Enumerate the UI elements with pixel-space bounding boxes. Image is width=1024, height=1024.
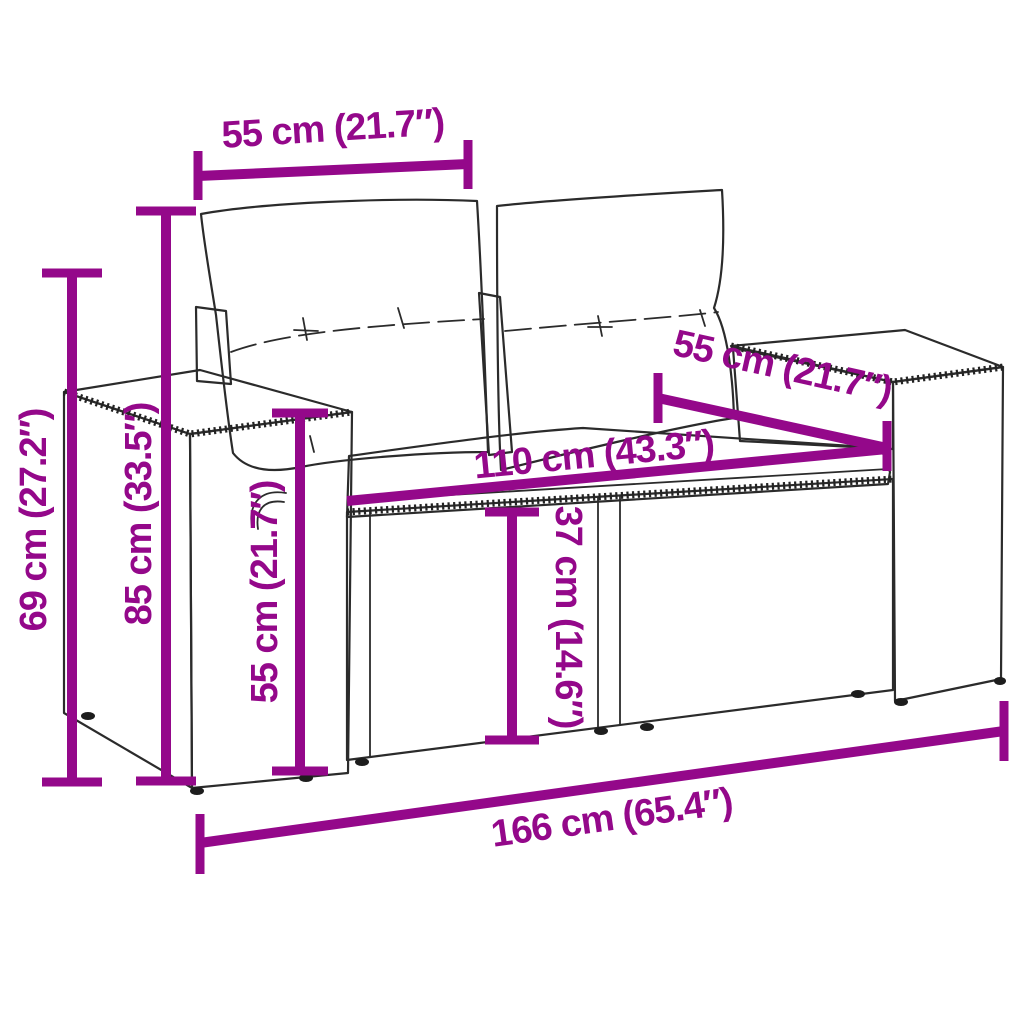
dim-seat-height: 37 cm (14.6″): [485, 506, 589, 740]
right-armrest-front-face: [893, 367, 1003, 701]
sofa-feet: [81, 677, 1006, 795]
dim-seat-front-height: 55 cm (21.7″): [244, 413, 328, 771]
dim-label-seat-depth: 55 cm (21.7″): [669, 322, 896, 411]
back-frame-center-post: [479, 293, 512, 455]
dim-armrest-height: 69 cm (27.2″): [13, 273, 102, 782]
dim-label-seat-height: 37 cm (14.6″): [547, 506, 589, 729]
dim-back-cushion-width: 55 cm (21.7″): [198, 101, 468, 200]
dim-label-seat-front-height: 55 cm (21.7″): [244, 481, 286, 704]
dim-label-total-width: 166 cm (65.4″): [489, 780, 735, 855]
sofa-drawing: [64, 190, 1006, 795]
left-back-cushion-crease: [231, 319, 484, 352]
dimension-diagram: 55 cm (21.7″) 55 cm (21.7″) 110 cm (43.3…: [0, 0, 1024, 1024]
left-armrest-top: [64, 370, 352, 434]
dim-label-back-cushion-width: 55 cm (21.7″): [220, 101, 445, 157]
dim-back-height: 85 cm (33.5″): [118, 211, 196, 781]
back-frame-left-post: [196, 307, 231, 384]
diagram-canvas: 55 cm (21.7″) 55 cm (21.7″) 110 cm (43.3…: [0, 0, 1024, 1024]
dimension-annotations: 55 cm (21.7″) 55 cm (21.7″) 110 cm (43.3…: [13, 101, 1004, 874]
dim-label-back-height: 85 cm (33.5″): [118, 403, 160, 626]
dim-label-armrest-height: 69 cm (27.2″): [13, 409, 55, 632]
